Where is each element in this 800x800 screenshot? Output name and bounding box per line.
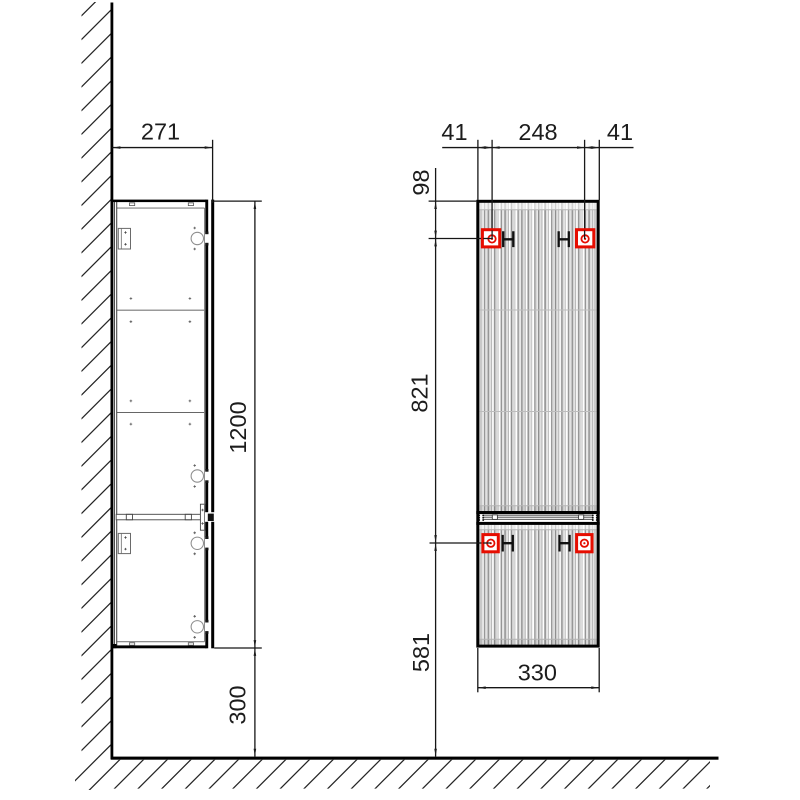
svg-text:271: 271 (141, 119, 180, 145)
svg-text:98: 98 (408, 169, 434, 195)
svg-text:300: 300 (225, 685, 251, 724)
svg-text:821: 821 (406, 373, 432, 412)
svg-text:41: 41 (607, 119, 633, 145)
svg-text:581: 581 (408, 633, 434, 672)
svg-text:248: 248 (518, 119, 557, 145)
svg-text:1200: 1200 (225, 401, 251, 453)
svg-text:41: 41 (441, 119, 467, 145)
svg-text:330: 330 (518, 659, 557, 685)
